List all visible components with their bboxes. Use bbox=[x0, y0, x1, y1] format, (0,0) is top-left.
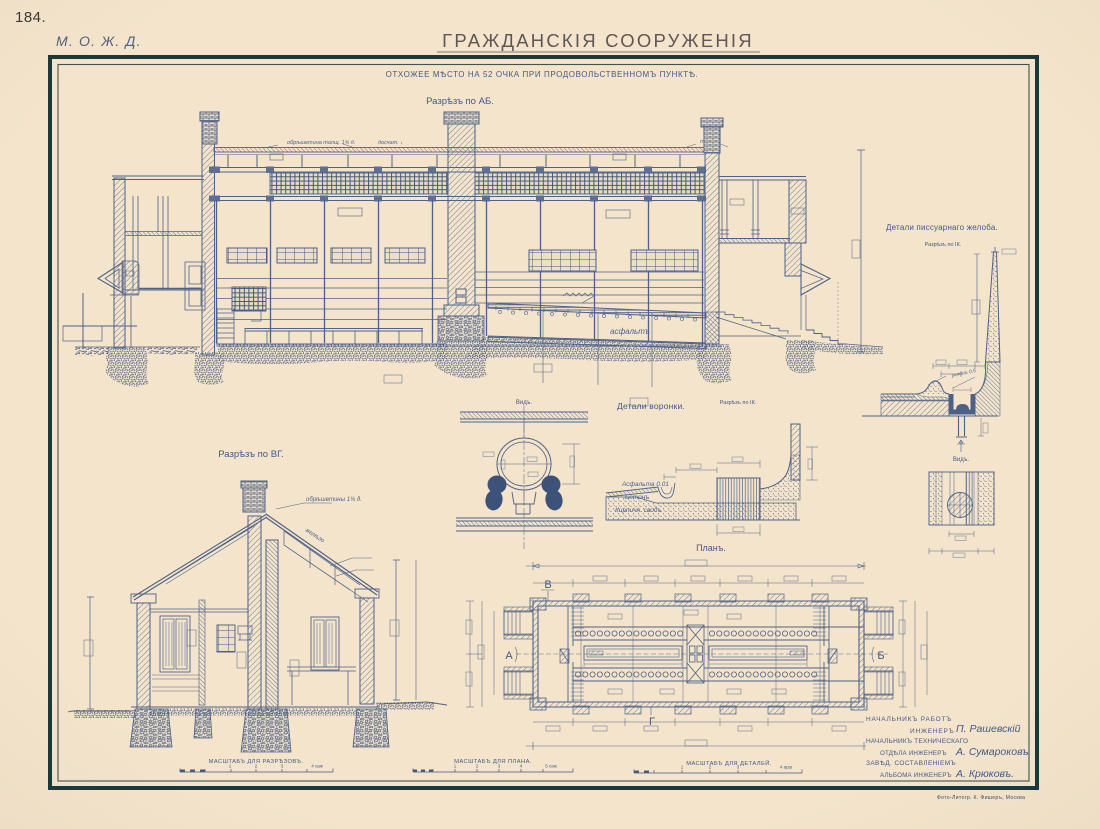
svg-text:А. Крюковъ.: А. Крюковъ. bbox=[955, 768, 1014, 780]
svg-text:обрѣшетина толщ. 1¾ д.: обрѣшетина толщ. 1¾ д. bbox=[287, 140, 355, 146]
svg-text:Разрѣзъ по ІК.: Разрѣзъ по ІК. bbox=[720, 400, 757, 406]
svg-text:4 саж: 4 саж bbox=[311, 764, 323, 769]
svg-text:Разрѣзъ по ІК.: Разрѣзъ по ІК. bbox=[925, 242, 962, 248]
svg-text:МАСШТАБЪ ДЛЯ ДЕТАЛЕЙ.: МАСШТАБЪ ДЛЯ ДЕТАЛЕЙ. bbox=[686, 759, 772, 767]
svg-text:Детали воронки.: Детали воронки. bbox=[617, 401, 685, 411]
svg-text:асфальтъ: асфальтъ bbox=[610, 327, 650, 336]
svg-text:ГРАЖДАНСКІЯ СООРУЖЕНІЯ: ГРАЖДАНСКІЯ СООРУЖЕНІЯ bbox=[442, 30, 754, 51]
svg-text:Кирпичн. сводъ: Кирпичн. сводъ bbox=[615, 506, 662, 514]
svg-text:ИНЖЕНЕРЪ: ИНЖЕНЕРЪ bbox=[910, 728, 955, 735]
svg-text:4 арш: 4 арш bbox=[780, 765, 793, 770]
svg-text:Асфальта 0.01: Асфальта 0.01 bbox=[621, 481, 669, 488]
svg-text:ОТХОЖЕЕ МѢСТО НА 52 ОЧКА ПРИ П: ОТХОЖЕЕ МѢСТО НА 52 ОЧКА ПРИ ПРОДОВОЛЬСТ… bbox=[386, 70, 699, 79]
svg-text:М. О. Ж. Д.: М. О. Ж. Д. bbox=[56, 33, 142, 49]
svg-text:В: В bbox=[544, 579, 551, 591]
svg-text:А: А bbox=[505, 650, 513, 662]
svg-text:Разрѣзъ по ВГ.: Разрѣзъ по ВГ. bbox=[218, 449, 283, 460]
svg-text:досчат. ↓: досчат. ↓ bbox=[378, 140, 403, 146]
svg-text:НАЧАЛЬНИКЪ РАБОТЪ: НАЧАЛЬНИКЪ РАБОТЪ bbox=[866, 716, 952, 723]
svg-text:Разрѣзъ по АБ.: Разрѣзъ по АБ. bbox=[426, 96, 494, 107]
svg-text:АЛЬБОМА ИНЖЕНЕРЪ: АЛЬБОМА ИНЖЕНЕРЪ bbox=[880, 772, 952, 779]
svg-text:5 саж: 5 саж bbox=[545, 764, 557, 769]
svg-text:ЗАВѢД. СОСТАВЛЕНІЕМЪ: ЗАВѢД. СОСТАВЛЕНІЕМЪ bbox=[866, 760, 956, 767]
svg-text:Фото-Литогр. К. Фишеръ, Мос: Фото-Литогр. К. Фишеръ, Москва bbox=[937, 795, 1025, 801]
svg-text:Б: Б bbox=[877, 650, 884, 662]
svg-text:А. Сумароковъ: А. Сумароковъ bbox=[955, 746, 1029, 758]
svg-text:184.: 184. bbox=[15, 9, 46, 26]
svg-text:П. Рашевскій: П. Рашевскій bbox=[956, 723, 1021, 735]
svg-text:обрѣшетины 1¾ д.: обрѣшетины 1¾ д. bbox=[306, 497, 362, 503]
svg-text:НАЧАЛЬНИКЪ ТЕХНИЧЕСКАГО: НАЧАЛЬНИКЪ ТЕХНИЧЕСКАГО bbox=[866, 738, 968, 745]
svg-text:Планъ.: Планъ. bbox=[696, 543, 726, 553]
svg-text:Видъ.: Видъ. bbox=[516, 400, 532, 406]
svg-text:Детали писсуарнаго желоба.: Детали писсуарнаго желоба. bbox=[886, 223, 998, 232]
svg-text:Бетонъ: Бетонъ bbox=[625, 494, 649, 501]
svg-text:Видъ.: Видъ. bbox=[953, 457, 969, 463]
svg-text:ОТДѢЛА ИНЖЕНЕРЪ: ОТДѢЛА ИНЖЕНЕРЪ bbox=[880, 750, 947, 757]
